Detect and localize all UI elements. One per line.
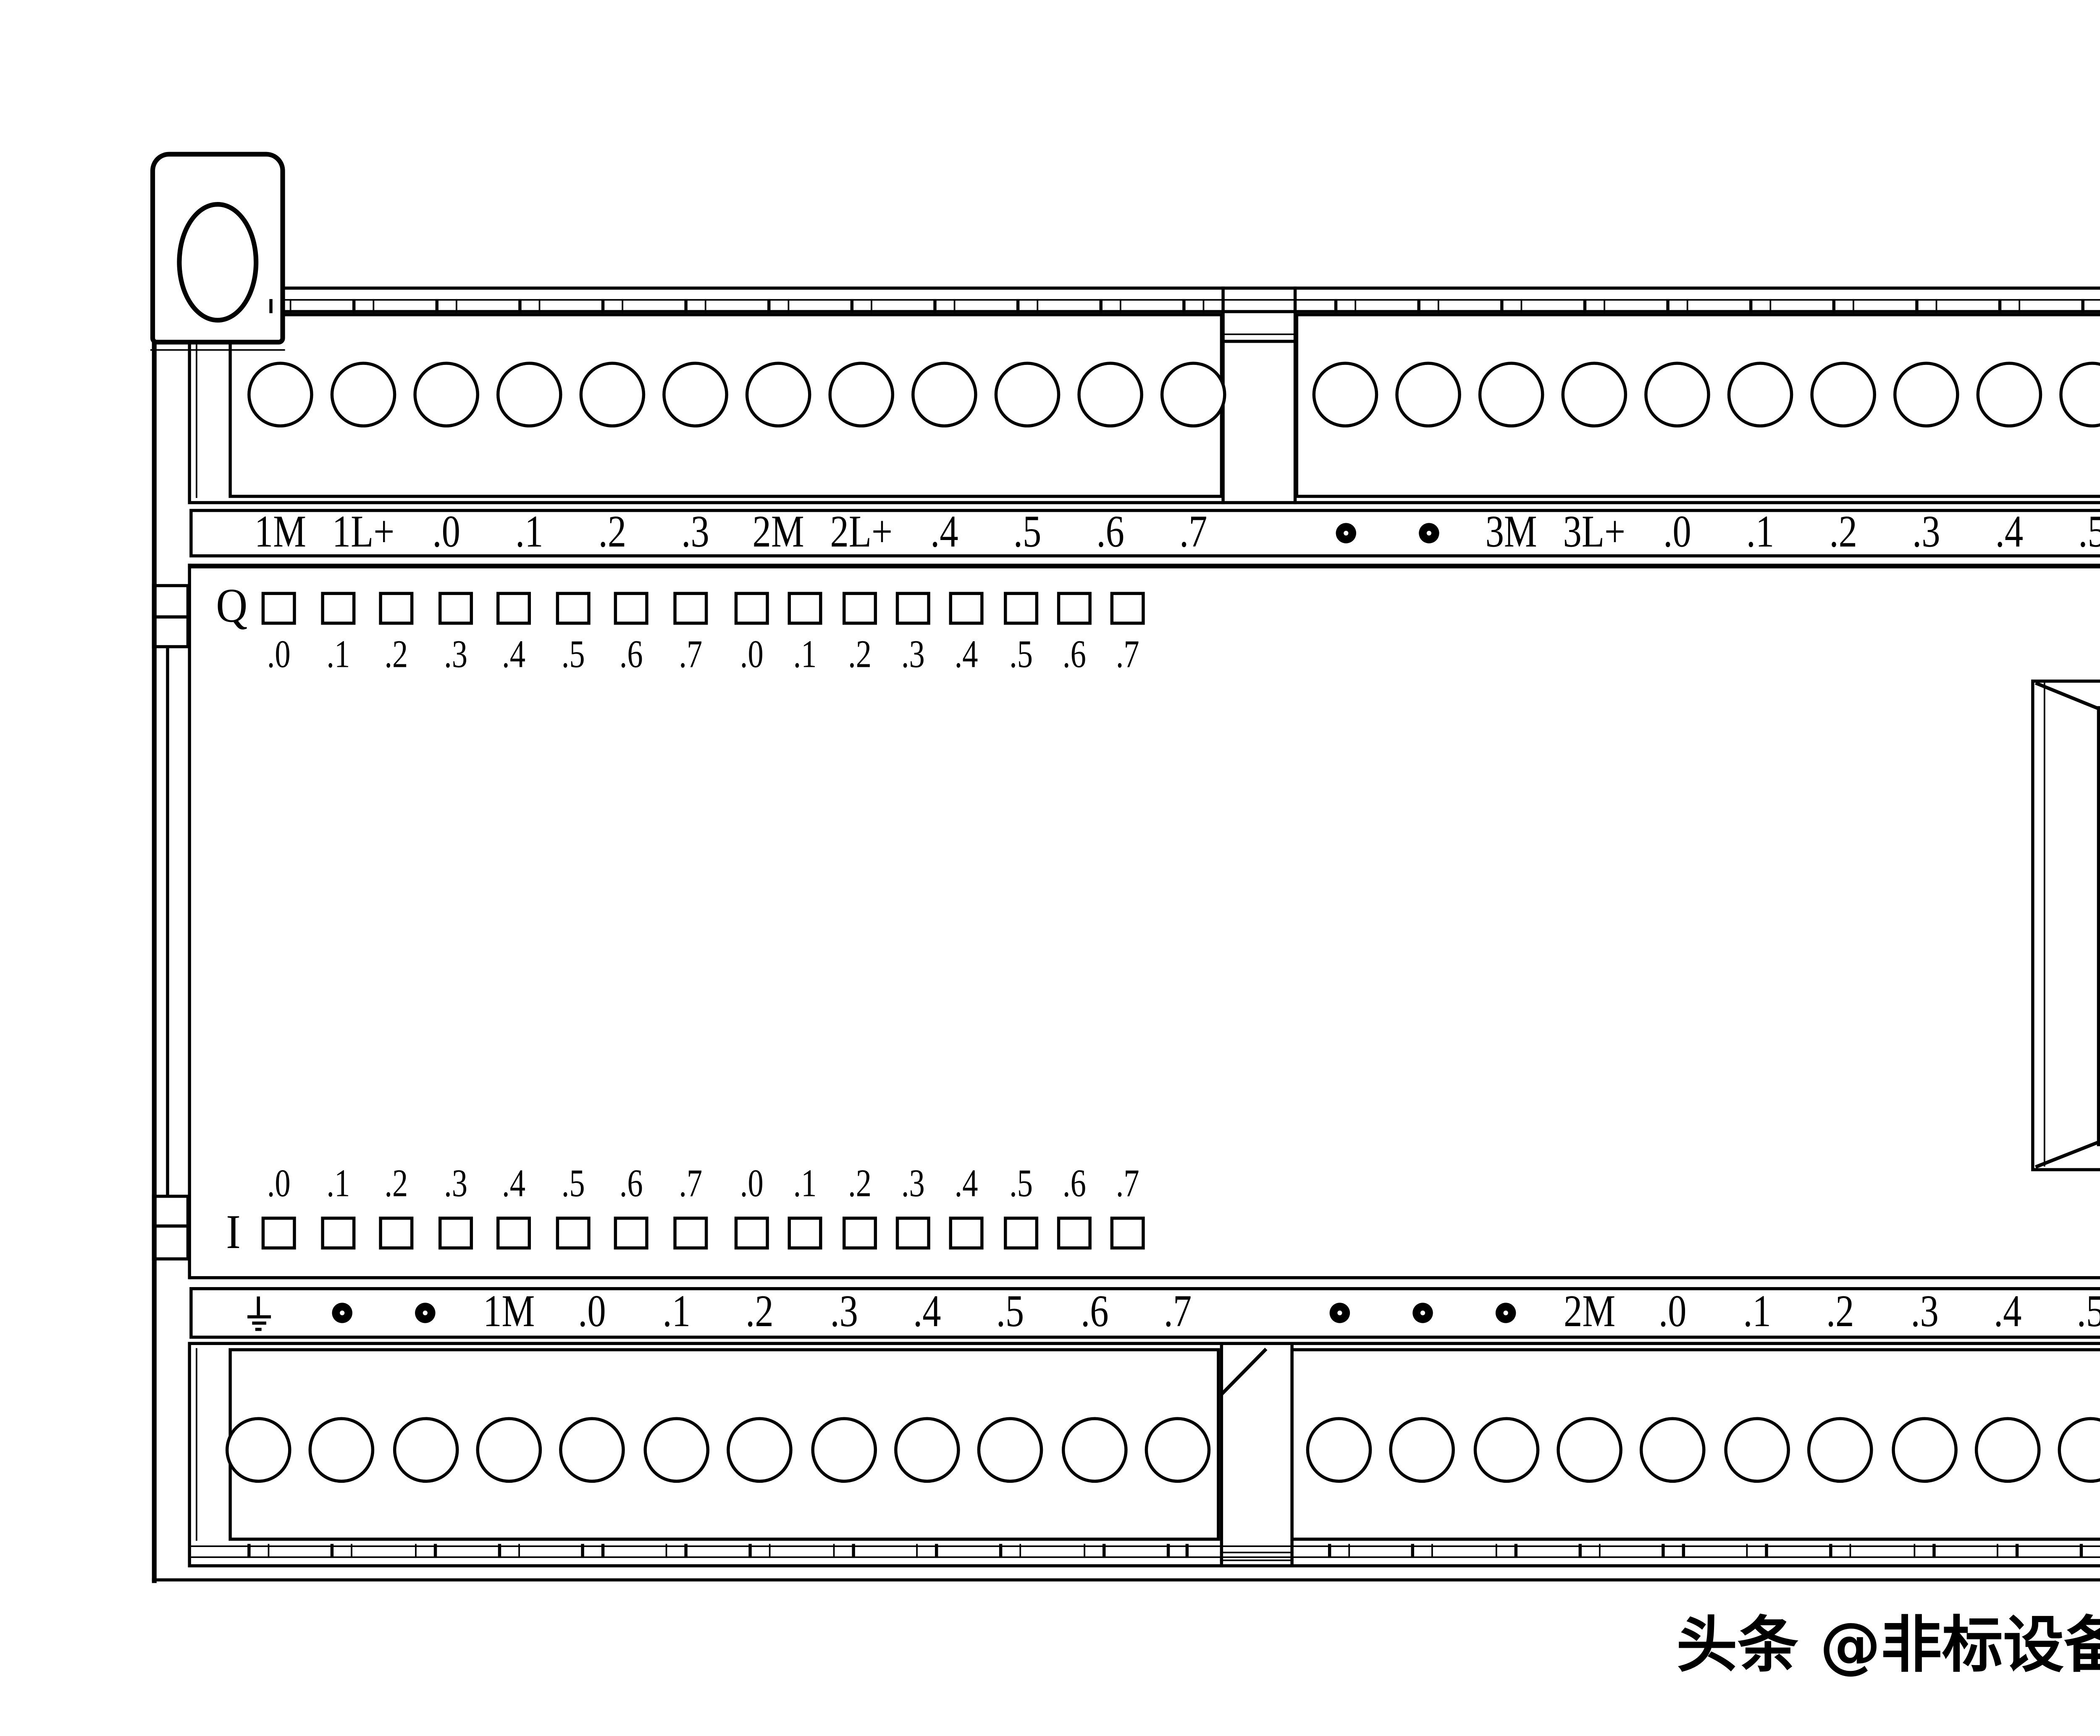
terminal-screw <box>1306 1417 1372 1483</box>
cover-hinge-tick <box>267 1543 270 1558</box>
bottom-strip-label: .7 <box>1164 1290 1192 1335</box>
terminal-screw <box>1395 362 1461 427</box>
top-strip-label: .0 <box>1663 511 1691 556</box>
top-strip-label: .5 <box>2078 511 2100 556</box>
output-bit-label: .3 <box>901 636 924 675</box>
earth-ground-icon <box>246 1295 271 1333</box>
terminal-screw <box>331 362 396 427</box>
plc-module-wiring-diagram: EM 223 DC/DC Q I 头条 @非标设备自动化设计 1M1L+.0.1… <box>0 0 2100 1735</box>
input-row-letter: I <box>226 1207 241 1256</box>
cover-hinge-tick <box>1202 298 1205 313</box>
cover-hinge-tick <box>2016 1543 2019 1558</box>
cover-hinge-tick <box>1686 298 1688 313</box>
output-bit-label: .6 <box>619 636 643 675</box>
input-bit-label: .3 <box>443 1165 467 1204</box>
cover-hinge-tick <box>935 1543 938 1558</box>
terminal-screw <box>247 362 313 427</box>
bottom-strip-label: .5 <box>997 1290 1025 1335</box>
bottom-cover-hinge-line-2 <box>191 1555 2100 1558</box>
cover-hinge-tick <box>331 1543 333 1558</box>
cover-hinge-tick <box>1328 1543 1331 1558</box>
top-divider-notch-2 <box>1221 340 1296 342</box>
input-bit-label: .0 <box>267 1165 291 1204</box>
top-strip-label: .2 <box>598 511 627 556</box>
input-bit-label: .6 <box>1062 1165 1086 1204</box>
bottom-strip-label: .0 <box>1659 1290 1688 1335</box>
terminal-screw <box>496 362 562 427</box>
cover-hinge-tick <box>1186 1543 1189 1558</box>
output-led-window <box>672 591 707 624</box>
output-led-window <box>438 591 472 624</box>
terminal-screw <box>828 362 894 427</box>
output-bit-label: .1 <box>326 636 349 675</box>
expansion-port-door <box>2031 679 2100 1171</box>
output-led-window <box>262 591 296 624</box>
top-strip-label: .3 <box>1912 511 1940 556</box>
output-bit-label: .4 <box>502 636 525 675</box>
input-led-window <box>614 1216 648 1248</box>
top-strip-label: .1 <box>1746 511 1774 556</box>
bottom-strip-label: .2 <box>1827 1290 1855 1335</box>
cover-hinge-tick <box>1997 1543 1999 1558</box>
cover-hinge-tick <box>1666 298 1669 313</box>
top-strip-label: 2L+ <box>830 511 893 556</box>
cover-hinge-tick <box>933 298 936 313</box>
mounting-hole <box>177 202 258 323</box>
cover-hinge-tick <box>953 298 955 313</box>
output-led-window <box>320 591 355 624</box>
input-led-window <box>672 1216 707 1248</box>
input-led-window <box>842 1216 877 1248</box>
module-type-label: EM 223 DC/DC <box>2098 572 2100 978</box>
cover-hinge-tick <box>2080 1543 2083 1558</box>
top-strip-label: .1 <box>515 511 543 556</box>
terminal-screw <box>662 362 728 427</box>
input-bit-label: .1 <box>326 1165 349 1204</box>
cover-hinge-tick <box>352 298 355 313</box>
bottom-strip-label: .2 <box>746 1290 774 1335</box>
output-bit-label: .4 <box>955 636 978 675</box>
cover-hinge-tick <box>434 1543 437 1558</box>
bottom-cover-divider-left <box>1220 1342 1223 1566</box>
cover-hinge-tick <box>2081 298 2084 313</box>
cover-hinge-tick <box>1182 298 1185 313</box>
cover-hinge-tick <box>269 298 272 313</box>
cover-hinge-tick <box>850 298 853 313</box>
cover-hinge-tick <box>1746 1543 1748 1558</box>
input-led-window <box>555 1216 590 1248</box>
terminal-screw <box>476 1417 542 1483</box>
input-led-window <box>262 1216 296 1248</box>
module-model: EM 223 <box>2098 673 2100 724</box>
input-bit-label: .2 <box>848 1165 871 1204</box>
face-left-edge <box>188 564 191 1279</box>
din-clip-step-lower-1 <box>152 1194 189 1227</box>
top-strip-label: .3 <box>681 511 709 556</box>
ground-bar <box>247 1315 270 1318</box>
cover-hinge-tick <box>1354 298 1356 313</box>
output-led-window <box>614 591 648 624</box>
input-led-window <box>788 1216 823 1248</box>
input-led-window <box>1110 1216 1145 1248</box>
input-led-window <box>895 1216 930 1248</box>
top-cover-divider-right <box>1293 286 1296 504</box>
top-strip-label: .0 <box>432 511 460 556</box>
input-led-window <box>735 1216 769 1248</box>
cover-hinge-tick <box>749 1543 751 1558</box>
cover-hinge-tick <box>1437 298 1439 313</box>
input-led-window <box>1057 1216 1091 1248</box>
cover-hinge-tick <box>1500 298 1503 313</box>
input-led-window <box>438 1216 472 1248</box>
terminal-screw <box>745 362 811 427</box>
left-inner-rail <box>165 648 168 1196</box>
cover-hinge-tick <box>852 1543 854 1558</box>
bottom-divider-notch-2 <box>1220 1559 1294 1561</box>
terminal-screw <box>1478 362 1544 427</box>
watermark-text: 头条 @非标设备自动化设计 <box>1676 1613 2100 1682</box>
cover-hinge-tick <box>1412 1543 1414 1558</box>
terminal-screw <box>911 362 977 427</box>
top-strip-label: 3M <box>1486 511 1537 556</box>
input-bit-label: .7 <box>678 1165 702 1204</box>
cover-hinge-tick <box>1167 1543 1169 1558</box>
cover-hinge-tick <box>1083 1543 1086 1558</box>
cover-hinge-tick <box>1495 1543 1498 1558</box>
bottom-outer-line <box>152 1578 2100 1581</box>
top-strip-label: 3L+ <box>1563 511 1626 556</box>
cover-hinge-tick <box>1913 1543 1916 1558</box>
cover-hinge-tick <box>1417 298 1420 313</box>
bottom-cover-hinge-line-1 <box>191 1545 2100 1547</box>
cover-hinge-tick <box>498 1543 501 1558</box>
input-led-window <box>949 1216 984 1248</box>
top-strip-label: .4 <box>930 511 958 556</box>
face-top-edge <box>188 564 2100 568</box>
left-outer-wall <box>152 172 156 1583</box>
terminal-screw <box>1473 1417 1539 1483</box>
cover-hinge-tick <box>1000 1543 1002 1558</box>
terminal-screw <box>413 362 479 427</box>
top-strip-label: .5 <box>1013 511 1042 556</box>
top-strip-label: .7 <box>1179 511 1207 556</box>
cover-hinge-tick <box>518 1543 520 1558</box>
bottom-strip-label: .3 <box>1910 1290 1938 1335</box>
input-bit-label: .3 <box>901 1165 924 1204</box>
din-clip-step-lower-2 <box>152 1224 189 1260</box>
output-bit-label: .2 <box>848 636 871 675</box>
terminal-screw <box>1893 362 1959 427</box>
face-bottom-edge <box>189 1275 2100 1280</box>
output-led-window <box>735 591 769 624</box>
terminal-screw <box>1644 362 1710 427</box>
cover-hinge-tick <box>787 298 790 313</box>
terminal-screw <box>1808 1417 1874 1483</box>
cover-hinge-tick <box>436 298 438 313</box>
bottom-strip-label: .4 <box>913 1290 941 1335</box>
terminal-screw <box>1724 1417 1790 1483</box>
output-led-window <box>1003 591 1037 624</box>
terminal-screw <box>1977 362 2042 427</box>
top-strip-label: .4 <box>1995 511 2024 556</box>
top-strip-label: 2M <box>753 511 804 556</box>
cover-hinge-tick <box>351 1543 353 1558</box>
terminal-dot-marker <box>1412 1303 1433 1323</box>
terminal-screw <box>1557 1417 1623 1483</box>
top-strip-label: 1M <box>255 511 306 556</box>
output-bit-label: .0 <box>740 636 764 675</box>
cover-hinge-tick <box>1431 1543 1434 1558</box>
cover-hinge-tick <box>1852 298 1854 313</box>
cover-hinge-tick <box>1603 298 1605 313</box>
terminal-screw <box>1312 362 1378 427</box>
cover-hinge-tick <box>1935 298 1937 313</box>
cover-hinge-tick <box>1102 1543 1105 1558</box>
output-bit-label: .6 <box>1062 636 1086 675</box>
ground-bar <box>251 1322 265 1324</box>
cover-hinge-tick <box>1832 298 1835 313</box>
output-row-letter: Q <box>216 581 247 629</box>
cover-hinge-tick <box>455 298 457 313</box>
output-led-window <box>555 591 590 624</box>
input-bit-label: .5 <box>1008 1165 1032 1204</box>
mounting-tab-base-line <box>150 349 284 351</box>
input-bit-label: .2 <box>384 1165 408 1204</box>
output-bit-label: .7 <box>1116 636 1139 675</box>
cover-hinge-tick <box>1019 1543 1021 1558</box>
top-strip-label: .6 <box>1096 511 1124 556</box>
cover-hinge-tick <box>582 1543 584 1558</box>
cover-hinge-tick <box>1769 298 1772 313</box>
top-cover-hinge-line-1 <box>191 298 2100 301</box>
output-led-window <box>1057 591 1091 624</box>
cover-hinge-tick <box>1515 1543 1517 1558</box>
cover-hinge-tick <box>247 1543 250 1558</box>
output-led-window <box>496 591 531 624</box>
terminal-screw <box>1145 1417 1211 1483</box>
output-bit-label: .5 <box>561 636 584 675</box>
cover-hinge-tick <box>1682 1543 1684 1558</box>
terminal-screw <box>1810 362 1876 427</box>
terminal-screw <box>1727 362 1793 427</box>
terminal-dot-marker <box>332 1303 352 1323</box>
terminal-screw <box>1891 1417 1957 1483</box>
cover-hinge-tick <box>1334 298 1337 313</box>
bottom-strip-label: .1 <box>662 1290 690 1335</box>
terminal-screw <box>1160 362 1226 427</box>
output-bit-label: .2 <box>384 636 408 675</box>
bottom-strip-label: .1 <box>1743 1290 1771 1335</box>
terminal-screw <box>978 1417 1044 1483</box>
output-bit-label: .5 <box>1008 636 1032 675</box>
output-led-window <box>379 591 413 624</box>
top-strip-label: 1L+ <box>332 511 395 556</box>
input-bit-label: .6 <box>619 1165 643 1204</box>
cover-hinge-tick <box>518 298 521 313</box>
top-strip-label: .2 <box>1829 511 1857 556</box>
terminal-screw <box>1974 1417 2040 1483</box>
cover-hinge-tick <box>1915 298 1918 313</box>
din-clip-step-upper-2 <box>152 615 189 648</box>
cover-hinge-tick <box>1998 298 2001 313</box>
terminal-screw <box>1077 362 1143 427</box>
bottom-strip-label: 1M <box>483 1290 535 1335</box>
cover-hinge-tick <box>1583 298 1586 313</box>
cover-hinge-tick <box>601 1543 604 1558</box>
cover-hinge-tick <box>665 1543 668 1558</box>
input-led-window <box>379 1216 413 1248</box>
cover-hinge-tick <box>769 1543 771 1558</box>
cover-hinge-tick <box>1036 298 1039 313</box>
cover-hinge-tick <box>704 298 706 313</box>
cover-hinge-tick <box>1520 298 1522 313</box>
cover-hinge-tick <box>289 298 291 313</box>
terminal-screw <box>643 1417 709 1483</box>
bottom-label-strip <box>189 1286 2100 1339</box>
output-bit-label: .3 <box>443 636 467 675</box>
cover-hinge-tick <box>684 298 687 313</box>
cover-hinge-tick <box>767 298 770 313</box>
top-divider-notch-1 <box>1221 333 1296 335</box>
input-bit-label: .5 <box>561 1165 584 1204</box>
terminal-screw <box>995 362 1060 427</box>
cover-hinge-tick <box>1119 298 1121 313</box>
top-label-strip <box>189 508 2100 557</box>
input-led-window <box>496 1216 531 1248</box>
output-bit-label: .1 <box>794 636 817 675</box>
cover-hinge-tick <box>372 298 375 313</box>
terminal-screw <box>811 1417 877 1483</box>
bottom-strip-label: .5 <box>2077 1290 2100 1335</box>
output-led-window <box>895 591 930 624</box>
terminal-screw <box>1061 1417 1127 1483</box>
cover-hinge-tick <box>1598 1543 1601 1558</box>
terminal-screw <box>1562 362 1627 427</box>
input-bit-label: .4 <box>955 1165 978 1204</box>
terminal-screw <box>894 1417 960 1483</box>
terminal-screw <box>393 1417 459 1483</box>
terminal-screw <box>226 1417 291 1483</box>
din-clip-step-upper-1 <box>152 584 189 618</box>
input-bit-label: .7 <box>1116 1165 1139 1204</box>
ground-bar <box>255 1328 262 1331</box>
cover-hinge-tick <box>1662 1543 1665 1558</box>
terminal-screw <box>580 362 646 427</box>
cover-hinge-tick <box>832 1543 835 1558</box>
bottom-cover-divider-right <box>1290 1342 1294 1566</box>
output-led-window <box>1110 591 1145 624</box>
cover-hinge-tick <box>1579 1543 1581 1558</box>
module-power-type: DC/DC <box>2098 826 2100 877</box>
ground-bar <box>257 1295 260 1315</box>
cover-hinge-tick <box>1765 1543 1768 1558</box>
terminal-screw <box>727 1417 793 1483</box>
cover-hinge-tick <box>1016 298 1019 313</box>
input-bit-label: .1 <box>794 1165 817 1204</box>
bottom-strip-label: .4 <box>1993 1290 2021 1335</box>
cover-hinge-tick <box>870 298 872 313</box>
output-bit-label: .0 <box>267 636 291 675</box>
cover-hinge-tick <box>621 298 623 313</box>
cover-hinge-tick <box>415 1543 417 1558</box>
bottom-strip-label: 2M <box>1564 1290 1615 1335</box>
cover-hinge-tick <box>538 298 541 313</box>
output-bit-label: .7 <box>678 636 702 675</box>
cover-hinge-tick <box>1100 298 1102 313</box>
cover-hinge-tick <box>601 298 604 313</box>
cover-hinge-tick <box>2018 298 2020 313</box>
bottom-strip-label: .0 <box>579 1290 607 1335</box>
cover-hinge-tick <box>1849 1543 1851 1558</box>
output-led-window <box>949 591 984 624</box>
bottom-strip-label: .3 <box>829 1290 858 1335</box>
cover-hinge-tick <box>1749 298 1752 313</box>
output-led-window <box>842 591 877 624</box>
door-left-inner-line <box>2043 683 2045 1167</box>
output-led-window <box>788 591 823 624</box>
cover-hinge-tick <box>685 1543 688 1558</box>
input-bit-label: .4 <box>502 1165 525 1204</box>
cover-hinge-tick <box>1348 1543 1350 1558</box>
bottom-cover-inner-left-line <box>195 1348 197 1540</box>
input-bit-label: .0 <box>740 1165 764 1204</box>
cover-hinge-tick <box>916 1543 919 1558</box>
bottom-divider-notch-1 <box>1220 1551 1294 1553</box>
input-led-window <box>320 1216 355 1248</box>
cover-hinge-tick <box>1932 1543 1935 1558</box>
input-led-window <box>1003 1216 1037 1248</box>
bottom-strip-label: .6 <box>1080 1290 1108 1335</box>
cover-hinge-tick <box>1830 1543 1832 1558</box>
